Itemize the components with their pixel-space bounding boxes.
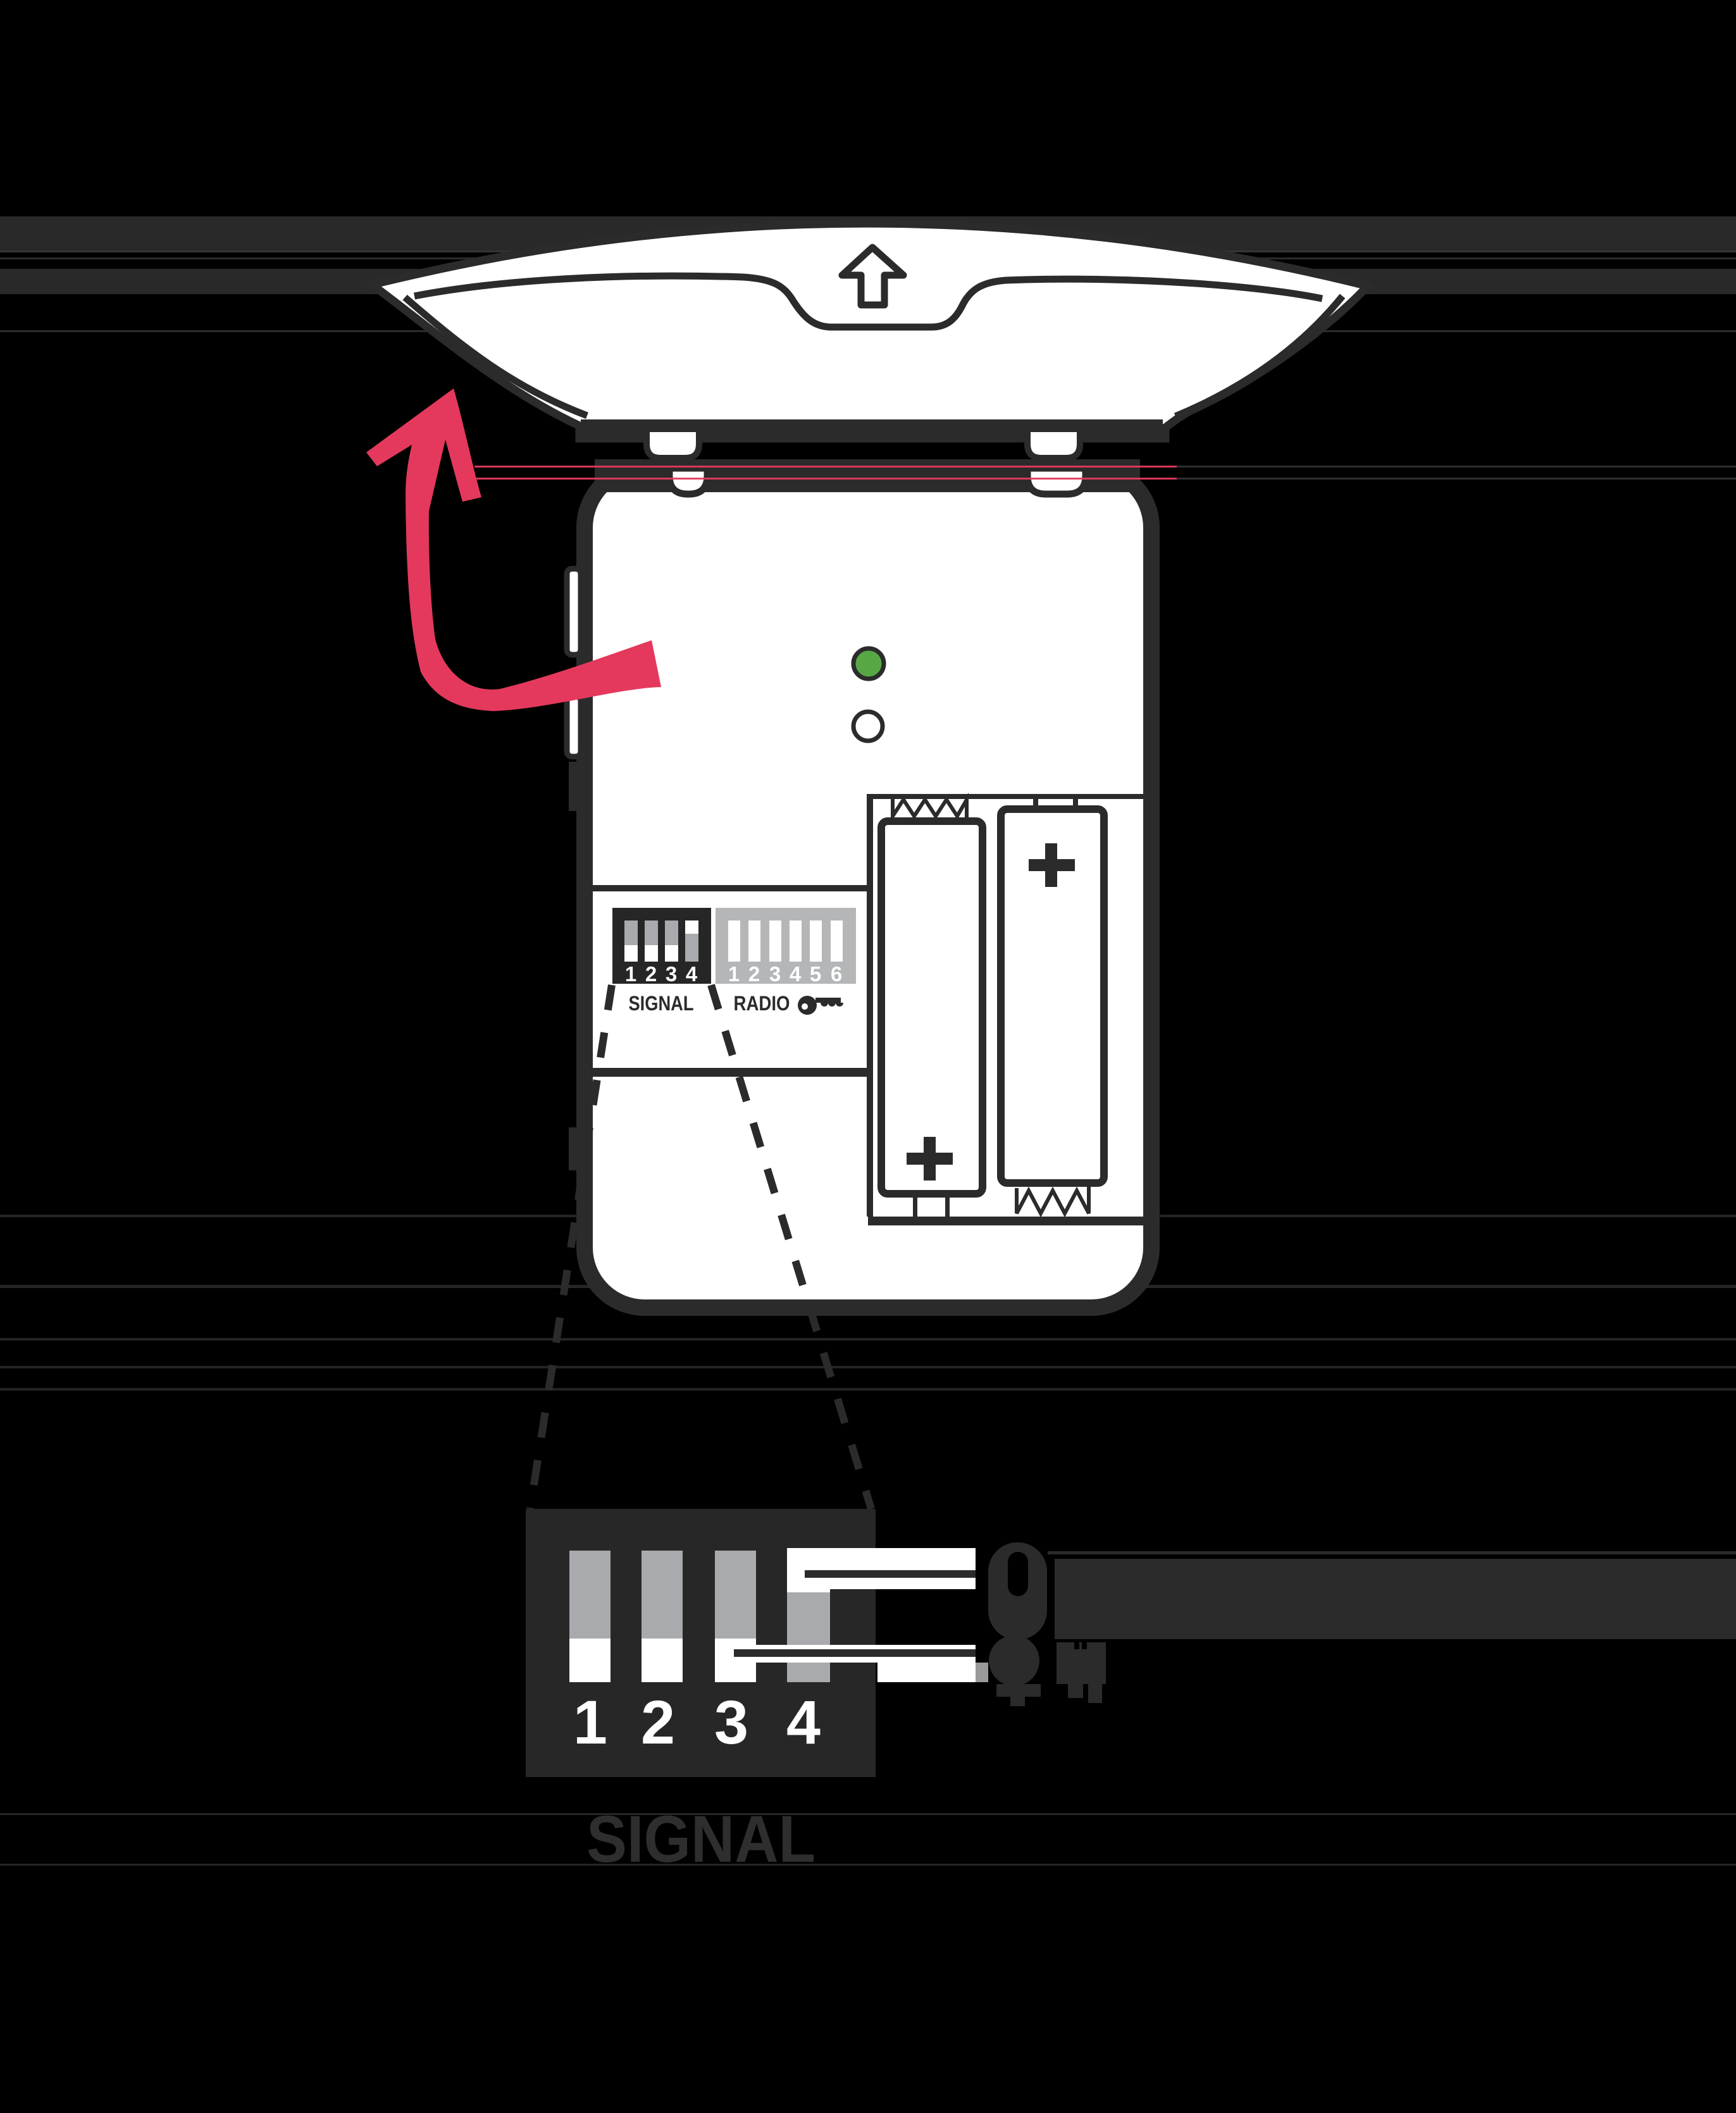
svg-text:3: 3 [714, 1688, 748, 1757]
svg-text:4: 4 [786, 1688, 821, 1757]
svg-text:3: 3 [666, 962, 677, 986]
svg-text:1: 1 [625, 962, 636, 986]
svg-text:1: 1 [573, 1688, 607, 1757]
svg-text:2: 2 [748, 962, 760, 986]
svg-text:4: 4 [686, 962, 698, 986]
svg-text:SIGNAL: SIGNAL [586, 1802, 815, 1876]
svg-text:SIGNAL: SIGNAL [629, 992, 694, 1015]
svg-text:6: 6 [831, 962, 842, 986]
svg-text:5: 5 [810, 962, 821, 986]
svg-text:RADIO: RADIO [734, 992, 790, 1015]
svg-text:2: 2 [645, 962, 657, 986]
svg-text:2: 2 [641, 1688, 675, 1757]
svg-text:1: 1 [728, 962, 740, 986]
svg-text:3: 3 [769, 962, 781, 986]
svg-text:4: 4 [790, 962, 802, 986]
